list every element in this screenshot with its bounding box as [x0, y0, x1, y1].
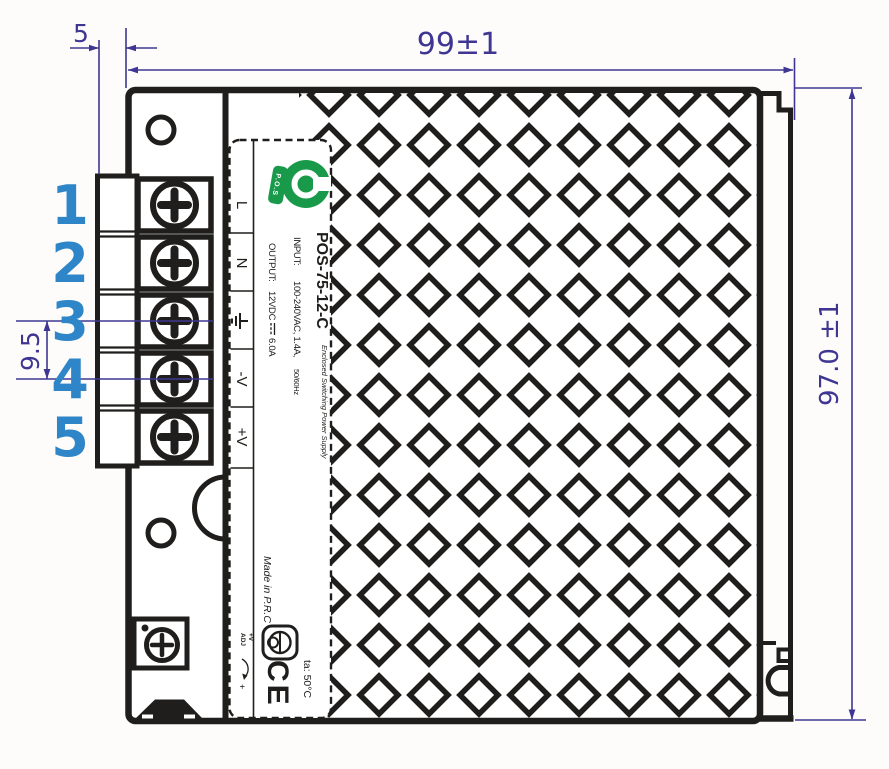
model-number: POS-75-12-C: [313, 232, 330, 329]
dim-height-value: 97.0 ±1: [815, 302, 845, 406]
mounting-hole-top: [148, 117, 174, 143]
pot-index-dot: [142, 625, 149, 632]
input-label: INPUT:: [291, 237, 302, 265]
terminal-number-4: 4: [51, 348, 89, 411]
adj-bottom-text: ADJ: [239, 633, 246, 646]
drawing-canvas: P.O.S L N -V +V POS-75-12-C Enclosed Swi…: [0, 0, 889, 769]
terminal-label-L: L: [233, 201, 250, 209]
dim-width-value: 99±1: [417, 27, 499, 62]
output-label: OUTPUT:: [266, 243, 277, 282]
output-current: 6.0A: [266, 338, 277, 357]
terminal-number-5: 5: [51, 406, 89, 469]
made-in-text: Made in P.R.C: [261, 556, 273, 623]
terminal-number-callouts: 1 2 3 4 5: [51, 174, 89, 469]
voltage-adjust-potentiometer: [134, 619, 187, 668]
dim-terminal-pitch-value: 9.5: [16, 331, 45, 371]
input-value: 100-240VAC, 1.4A,: [291, 281, 302, 357]
case-outline: [129, 90, 761, 721]
terminal-number-3: 3: [51, 290, 89, 353]
output-rating-line: OUTPUT: 12VDC 6.0A: [266, 243, 277, 357]
terminal-screw-5: [138, 411, 211, 463]
dim-height: 97.0 ±1: [795, 88, 866, 720]
adj-plus-sign: +: [237, 684, 247, 689]
model-subtitle: Enclosed Switching Power Supply: [320, 345, 329, 460]
product-label: P.O.S L N -V +V POS-75-12-C Enclosed Swi…: [230, 140, 332, 718]
ce-mark: CE: [261, 660, 294, 708]
ambient-temp-text: ta: 50°C: [301, 660, 313, 698]
terminal-number-1: 1: [51, 174, 89, 237]
terminal-screw-2: [138, 237, 211, 289]
input-frequency: 50/60Hz: [292, 369, 301, 395]
flange-hook-slot: [768, 668, 790, 695]
terminal-label-negV: -V: [233, 372, 250, 387]
terminal-number-2: 2: [51, 232, 89, 295]
dim-top-offset-value: 5: [73, 19, 89, 48]
vent-pattern: [299, 93, 758, 718]
terminal-screw-1: [138, 179, 211, 231]
terminal-label-N: N: [233, 258, 250, 269]
technical-drawing: P.O.S L N -V +V POS-75-12-C Enclosed Swi…: [0, 0, 889, 769]
terminal-label-posV: +V: [233, 428, 250, 447]
adj-top-text: +V: [247, 633, 254, 642]
output-voltage: 12VDC: [266, 291, 277, 321]
input-rating-line: INPUT: 100-240VAC, 1.4A, 50/60Hz: [291, 237, 302, 395]
mounting-hole-bottom: [148, 520, 174, 546]
pos-logo: P.O.S: [267, 160, 331, 208]
